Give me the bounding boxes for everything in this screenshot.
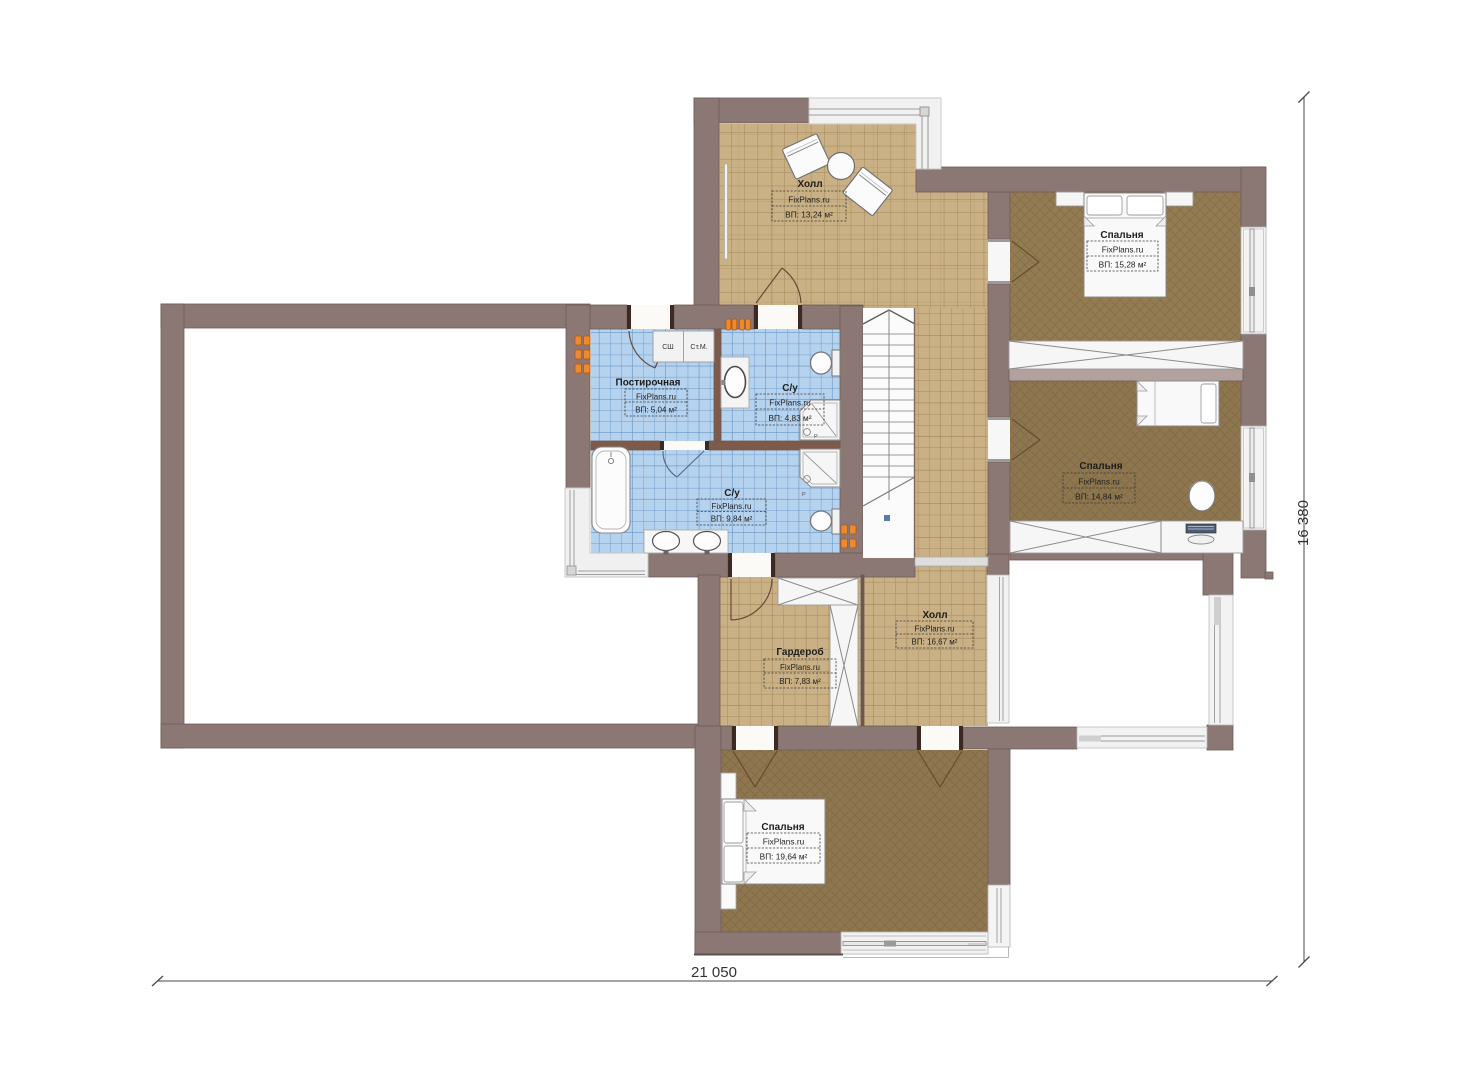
svg-text:Спальня: Спальня <box>1100 230 1143 241</box>
svg-text:Холл: Холл <box>797 179 822 190</box>
svg-text:ВП: 15,28 м²: ВП: 15,28 м² <box>1099 260 1147 270</box>
svg-text:FixPlans.ru: FixPlans.ru <box>711 502 751 511</box>
svg-text:ВП: 5,04 м²: ВП: 5,04 м² <box>635 406 677 415</box>
svg-text:ВП: 4,83 м²: ВП: 4,83 м² <box>768 413 811 423</box>
svg-text:FixPlans.ru: FixPlans.ru <box>769 398 811 408</box>
svg-text:FixPlans.ru: FixPlans.ru <box>788 195 830 205</box>
svg-text:ВП: 13,24 м²: ВП: 13,24 м² <box>785 210 833 220</box>
svg-text:Гардероб: Гардероб <box>776 646 823 658</box>
svg-text:ВП: 9,84 м²: ВП: 9,84 м² <box>711 515 753 524</box>
svg-text:ВП: 19,64 м²: ВП: 19,64 м² <box>760 852 808 862</box>
svg-text:FixPlans.ru: FixPlans.ru <box>636 393 676 402</box>
svg-text:Спальня: Спальня <box>761 822 804 833</box>
svg-text:Ст.М.: Ст.М. <box>690 344 707 351</box>
svg-text:ВП: 7,83 м²: ВП: 7,83 м² <box>779 677 821 686</box>
svg-text:С/у: С/у <box>724 488 740 499</box>
svg-text:16 380: 16 380 <box>1295 500 1312 546</box>
svg-text:FixPlans.ru: FixPlans.ru <box>914 625 954 634</box>
svg-text:FixPlans.ru: FixPlans.ru <box>1102 245 1144 255</box>
svg-text:Постирочная: Постирочная <box>616 378 681 389</box>
svg-text:FixPlans.ru: FixPlans.ru <box>763 837 805 847</box>
svg-text:ВП: 16,67 м²: ВП: 16,67 м² <box>912 638 958 647</box>
svg-text:С/у: С/у <box>782 383 798 394</box>
svg-text:ВП: 14,84 м²: ВП: 14,84 м² <box>1075 492 1123 502</box>
svg-text:21 050: 21 050 <box>691 964 737 981</box>
svg-text:FixPlans.ru: FixPlans.ru <box>780 663 820 672</box>
svg-text:Холл: Холл <box>922 610 947 621</box>
svg-text:СШ: СШ <box>662 344 673 351</box>
svg-text:Р: Р <box>802 492 806 498</box>
svg-text:FixPlans.ru: FixPlans.ru <box>1078 477 1120 487</box>
svg-text:Р: Р <box>814 434 818 440</box>
svg-text:Спальня: Спальня <box>1079 461 1122 472</box>
